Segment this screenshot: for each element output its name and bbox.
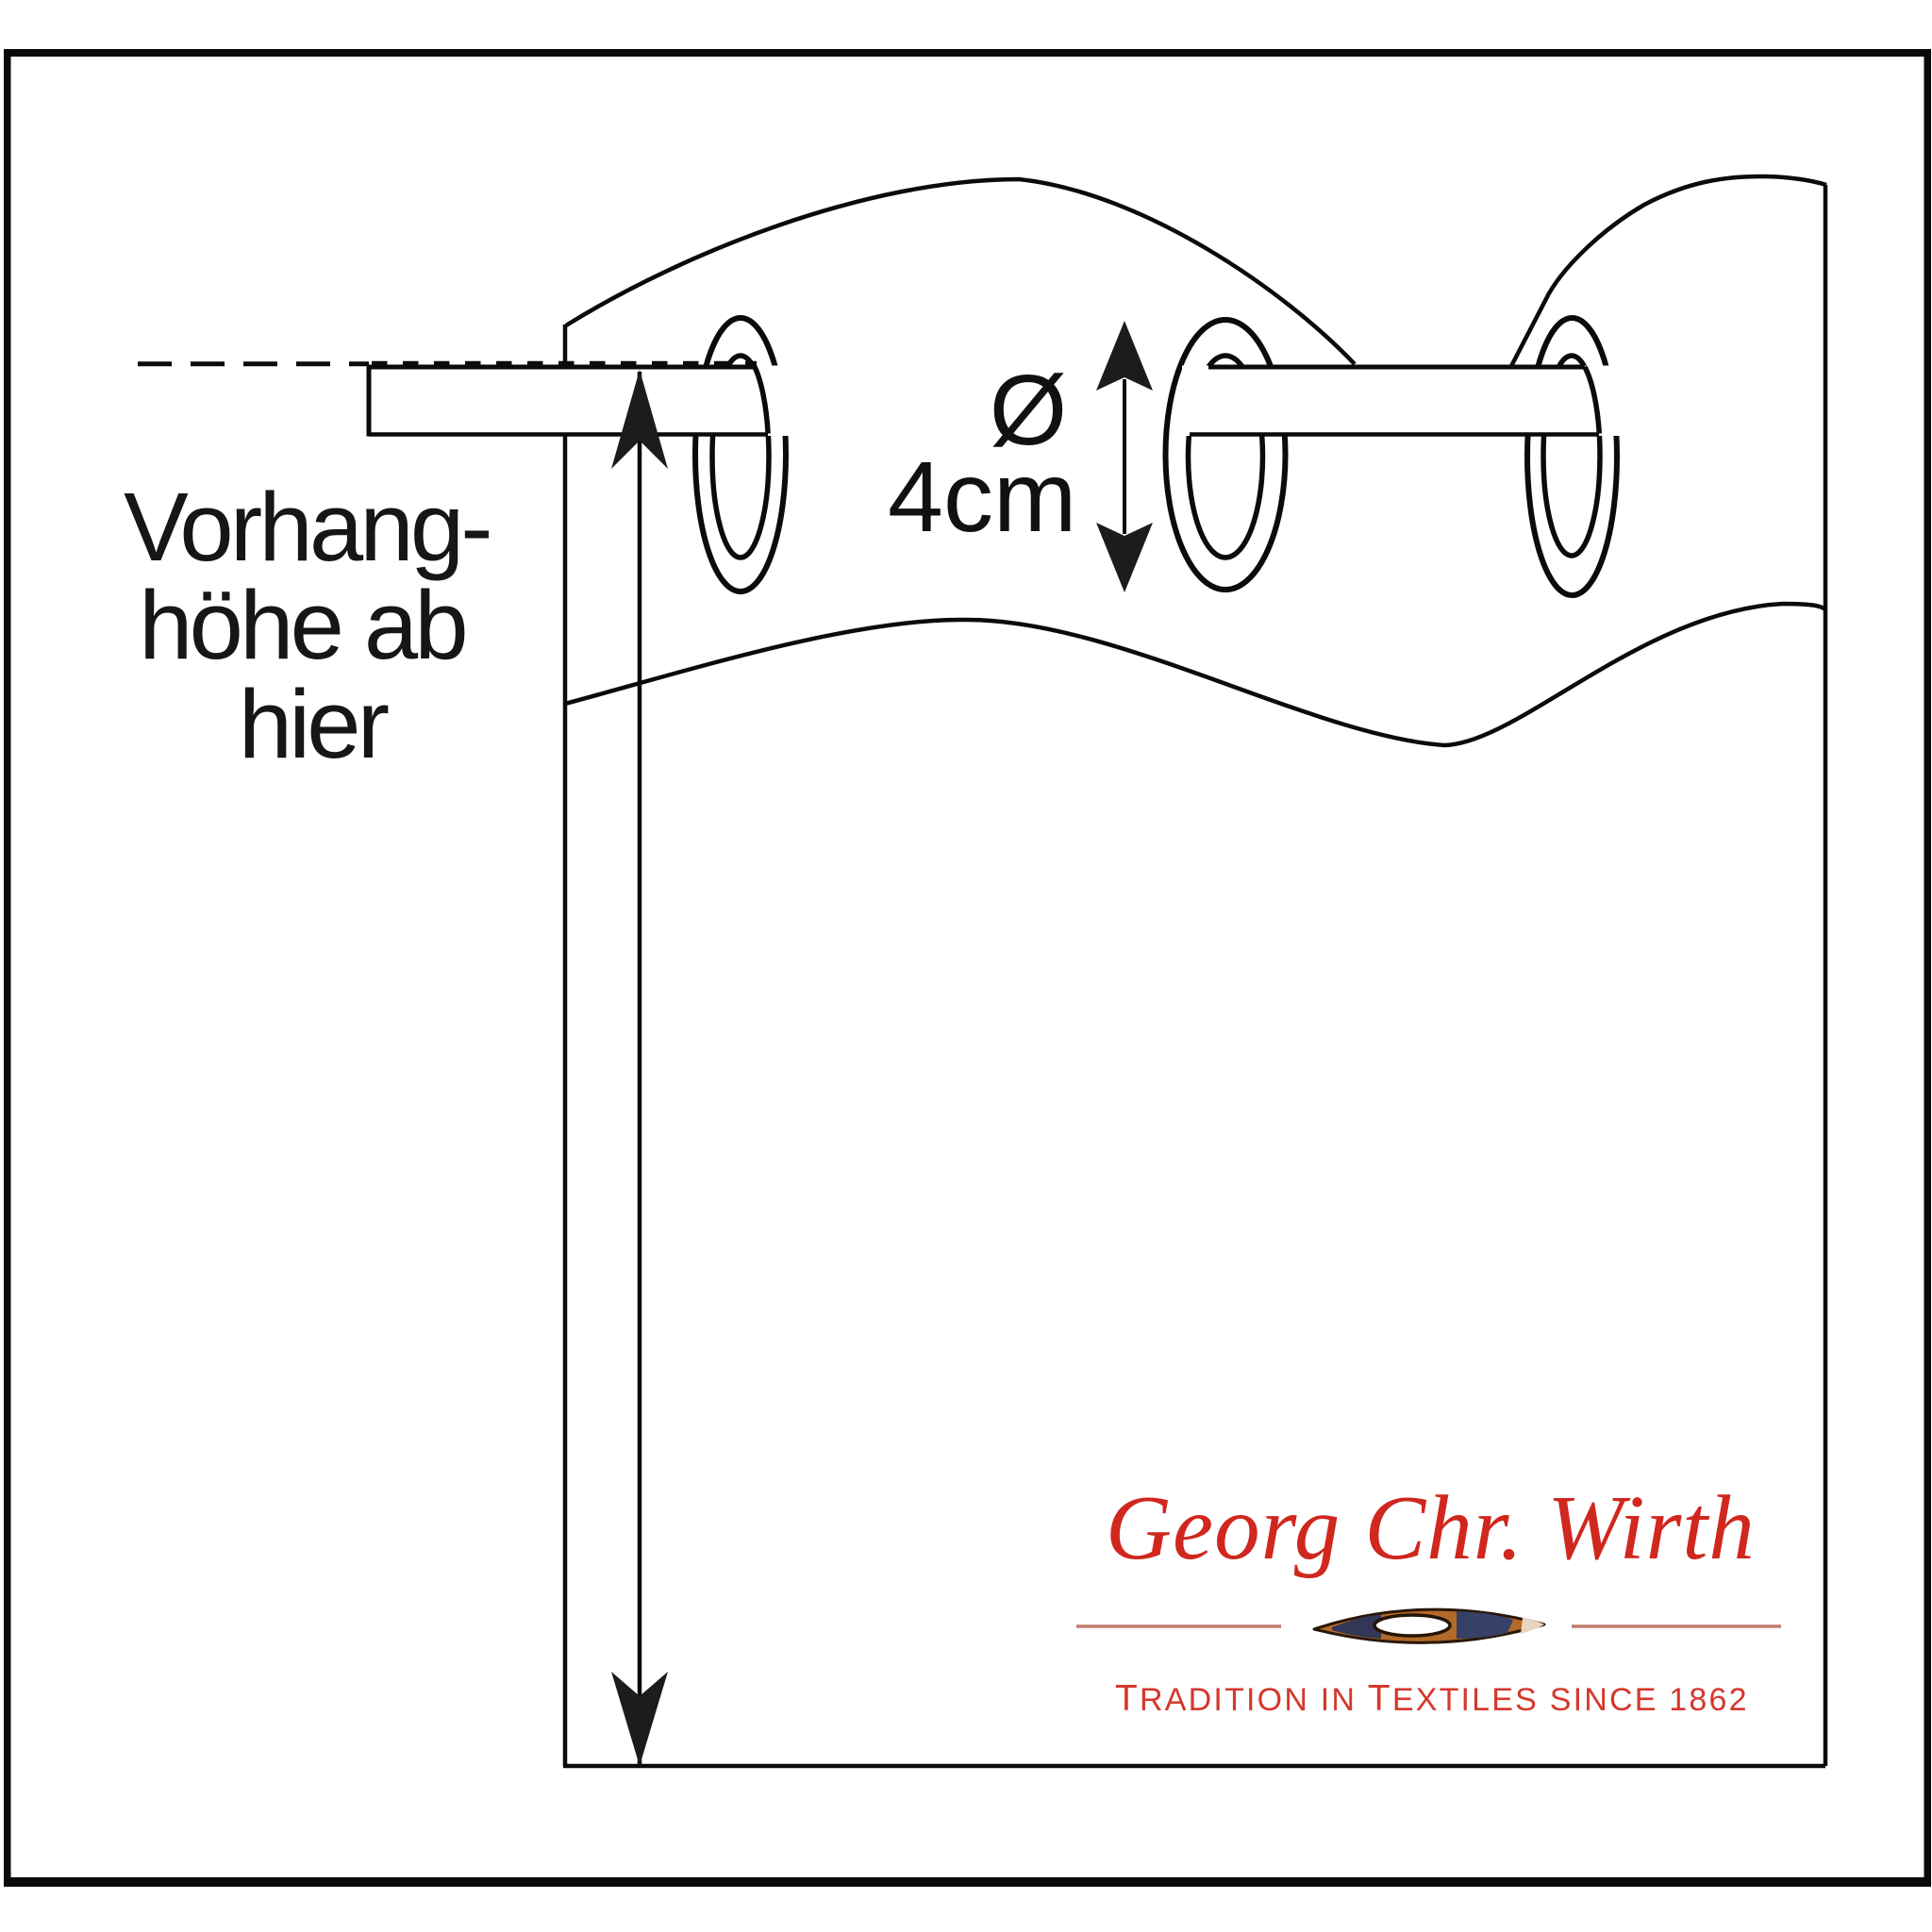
svg-text:hier: hier [239, 670, 389, 778]
svg-text:Georg Chr. Wirth: Georg Chr. Wirth [1106, 1477, 1756, 1578]
svg-text:Vorhang-: Vorhang- [124, 473, 490, 581]
svg-text:4cm: 4cm [888, 441, 1076, 553]
svg-text:höhe ab: höhe ab [139, 571, 465, 679]
svg-text:TRADITION IN TEXTILES SINCE 18: TRADITION IN TEXTILES SINCE 1862 [1115, 1678, 1749, 1719]
